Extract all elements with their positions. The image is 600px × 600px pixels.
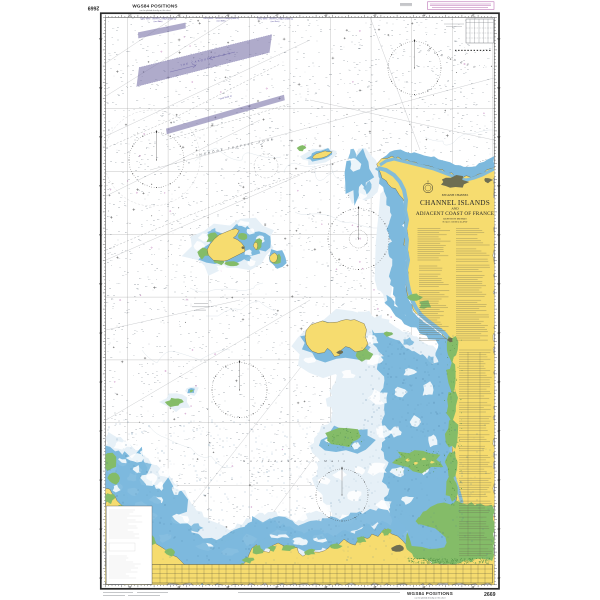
svg-text:36: 36 bbox=[326, 173, 328, 175]
svg-text:67: 67 bbox=[313, 143, 315, 145]
svg-text:57: 57 bbox=[209, 416, 211, 418]
svg-text:63: 63 bbox=[340, 180, 342, 182]
svg-text:23: 23 bbox=[136, 161, 138, 163]
svg-text:86: 86 bbox=[128, 309, 130, 311]
svg-text:20: 20 bbox=[246, 456, 248, 458]
svg-text:46: 46 bbox=[291, 236, 293, 238]
svg-text:80: 80 bbox=[277, 363, 279, 365]
svg-text:59: 59 bbox=[357, 74, 359, 76]
svg-text:50: 50 bbox=[358, 131, 360, 133]
svg-text:52: 52 bbox=[252, 399, 254, 401]
svg-text:84: 84 bbox=[407, 24, 409, 26]
svg-text:33: 33 bbox=[155, 287, 157, 289]
svg-text:84: 84 bbox=[303, 53, 305, 55]
svg-text:5: 5 bbox=[153, 414, 154, 416]
svg-text:32: 32 bbox=[160, 193, 162, 195]
svg-text:88: 88 bbox=[213, 438, 215, 440]
svg-text:59: 59 bbox=[138, 127, 140, 129]
svg-text:52: 52 bbox=[266, 314, 268, 316]
svg-text:79: 79 bbox=[262, 153, 264, 155]
svg-text:47: 47 bbox=[474, 155, 476, 157]
svg-text:16: 16 bbox=[212, 105, 214, 107]
svg-text:36: 36 bbox=[135, 170, 137, 172]
svg-text:66: 66 bbox=[234, 386, 236, 388]
svg-text:15: 15 bbox=[184, 137, 186, 139]
svg-text:68: 68 bbox=[343, 115, 345, 117]
svg-text:40: 40 bbox=[302, 225, 304, 227]
svg-text:88: 88 bbox=[151, 155, 153, 157]
svg-text:52: 52 bbox=[486, 142, 488, 144]
svg-text:91: 91 bbox=[396, 19, 398, 21]
svg-text:81: 81 bbox=[341, 305, 343, 307]
svg-text:45: 45 bbox=[281, 331, 283, 333]
svg-text:80: 80 bbox=[379, 150, 381, 152]
svg-text:14: 14 bbox=[272, 87, 274, 89]
svg-text:86: 86 bbox=[129, 414, 131, 416]
svg-text:52: 52 bbox=[204, 388, 206, 390]
svg-text:60: 60 bbox=[151, 264, 153, 266]
svg-text:34: 34 bbox=[338, 203, 340, 205]
svg-text:29: 29 bbox=[215, 306, 217, 308]
svg-text:21: 21 bbox=[349, 210, 351, 212]
svg-text:43: 43 bbox=[117, 27, 119, 29]
svg-text:43: 43 bbox=[340, 46, 342, 48]
svg-text:15: 15 bbox=[343, 303, 345, 305]
svg-text:9: 9 bbox=[173, 361, 174, 363]
svg-text:43: 43 bbox=[330, 270, 332, 272]
svg-text:49: 49 bbox=[281, 210, 283, 212]
svg-text:51: 51 bbox=[192, 23, 194, 25]
svg-text:78: 78 bbox=[129, 259, 131, 261]
svg-text:31: 31 bbox=[440, 88, 442, 90]
svg-text:25: 25 bbox=[268, 96, 270, 98]
svg-text:40: 40 bbox=[340, 286, 342, 288]
svg-text:38: 38 bbox=[226, 24, 228, 26]
svg-text:30: 30 bbox=[255, 136, 257, 138]
svg-text:15: 15 bbox=[371, 85, 373, 87]
svg-text:85: 85 bbox=[194, 140, 196, 142]
svg-text:11: 11 bbox=[198, 337, 200, 339]
svg-text:88: 88 bbox=[169, 373, 171, 375]
svg-text:50: 50 bbox=[368, 119, 370, 121]
svg-text:84: 84 bbox=[301, 407, 303, 409]
svg-text:13: 13 bbox=[373, 258, 375, 260]
svg-text:8: 8 bbox=[408, 105, 409, 107]
svg-text:42: 42 bbox=[477, 115, 479, 117]
svg-text:48: 48 bbox=[106, 148, 108, 150]
svg-text:4: 4 bbox=[312, 236, 313, 238]
svg-text:75: 75 bbox=[217, 461, 219, 463]
svg-text:91: 91 bbox=[275, 353, 277, 355]
svg-text:10: 10 bbox=[299, 76, 301, 78]
svg-text:42: 42 bbox=[339, 199, 341, 201]
svg-text:84: 84 bbox=[192, 182, 194, 184]
svg-text:6: 6 bbox=[183, 366, 184, 368]
svg-text:74: 74 bbox=[361, 215, 363, 217]
svg-text:62: 62 bbox=[258, 167, 260, 169]
svg-text:47: 47 bbox=[230, 36, 232, 38]
svg-text:91: 91 bbox=[167, 322, 169, 324]
svg-text:20: 20 bbox=[122, 73, 124, 75]
svg-text:34: 34 bbox=[186, 363, 188, 365]
svg-text:18: 18 bbox=[156, 268, 158, 270]
svg-text:70: 70 bbox=[158, 210, 160, 212]
svg-text:64: 64 bbox=[315, 227, 317, 229]
svg-text:68: 68 bbox=[228, 141, 230, 143]
svg-text:74: 74 bbox=[355, 35, 357, 37]
svg-text:92: 92 bbox=[302, 307, 304, 309]
svg-text:45: 45 bbox=[360, 39, 362, 41]
svg-text:5: 5 bbox=[316, 127, 317, 129]
svg-text:79: 79 bbox=[243, 383, 245, 385]
svg-text:61: 61 bbox=[290, 222, 292, 224]
svg-text:83: 83 bbox=[149, 249, 151, 251]
svg-text:4: 4 bbox=[368, 246, 369, 248]
svg-text:48′: 48′ bbox=[99, 380, 103, 384]
svg-text:85: 85 bbox=[261, 75, 263, 77]
svg-text:53: 53 bbox=[290, 327, 292, 329]
svg-text:9: 9 bbox=[156, 279, 157, 281]
svg-text:77: 77 bbox=[466, 98, 468, 100]
svg-text:49: 49 bbox=[108, 87, 110, 89]
svg-text:90: 90 bbox=[179, 81, 181, 83]
svg-text:27: 27 bbox=[242, 373, 244, 375]
svg-text:39: 39 bbox=[293, 455, 295, 457]
svg-text:76: 76 bbox=[267, 317, 269, 319]
svg-text:11: 11 bbox=[181, 377, 183, 379]
svg-text:74: 74 bbox=[128, 110, 130, 112]
svg-text:64: 64 bbox=[176, 391, 178, 393]
svg-text:78: 78 bbox=[130, 24, 132, 26]
svg-text:13: 13 bbox=[423, 130, 425, 132]
svg-text:46′: 46′ bbox=[324, 585, 328, 589]
svg-text:75: 75 bbox=[121, 395, 123, 397]
svg-text:10: 10 bbox=[140, 414, 142, 416]
svg-text:17: 17 bbox=[402, 75, 404, 77]
svg-text:61: 61 bbox=[313, 431, 315, 433]
svg-text:62: 62 bbox=[297, 111, 299, 113]
svg-text:70: 70 bbox=[110, 216, 112, 218]
svg-text:49: 49 bbox=[124, 205, 126, 207]
svg-text:21: 21 bbox=[354, 84, 356, 86]
svg-text:WGS84 POSITIONS: WGS84 POSITIONS bbox=[407, 591, 453, 596]
svg-text:51: 51 bbox=[137, 271, 139, 273]
svg-text:44: 44 bbox=[309, 406, 311, 408]
svg-text:12: 12 bbox=[292, 416, 294, 418]
svg-text:56: 56 bbox=[192, 154, 194, 156]
svg-text:10: 10 bbox=[380, 144, 382, 146]
svg-text:30: 30 bbox=[198, 98, 200, 100]
svg-text:52: 52 bbox=[106, 185, 108, 187]
svg-text:60: 60 bbox=[364, 123, 366, 125]
svg-text:33: 33 bbox=[267, 504, 269, 506]
svg-text:5: 5 bbox=[205, 351, 206, 353]
svg-text:27: 27 bbox=[183, 101, 185, 103]
svg-text:28: 28 bbox=[113, 303, 115, 305]
svg-text:43: 43 bbox=[141, 39, 143, 41]
svg-text:79: 79 bbox=[188, 361, 190, 363]
svg-text:83: 83 bbox=[233, 316, 235, 318]
svg-text:53: 53 bbox=[160, 173, 162, 175]
svg-text:85: 85 bbox=[316, 302, 318, 304]
svg-text:31: 31 bbox=[156, 371, 158, 373]
svg-text:8: 8 bbox=[151, 309, 152, 311]
svg-text:21: 21 bbox=[119, 201, 121, 203]
svg-text:70: 70 bbox=[313, 172, 315, 174]
svg-text:14: 14 bbox=[253, 147, 255, 149]
svg-text:(see Note): (see Note) bbox=[217, 20, 226, 23]
svg-text:61: 61 bbox=[298, 211, 300, 213]
svg-text:44: 44 bbox=[300, 245, 302, 247]
svg-text:65: 65 bbox=[213, 377, 215, 379]
svg-text:80: 80 bbox=[432, 71, 434, 73]
svg-text:23: 23 bbox=[160, 191, 162, 193]
svg-text:84: 84 bbox=[316, 185, 318, 187]
svg-text:45′: 45′ bbox=[373, 585, 377, 589]
svg-text:8: 8 bbox=[338, 135, 339, 137]
svg-text:62: 62 bbox=[130, 86, 132, 88]
svg-text:56: 56 bbox=[164, 43, 166, 45]
svg-text:58: 58 bbox=[368, 299, 370, 301]
svg-text:20: 20 bbox=[335, 262, 337, 264]
svg-text:42: 42 bbox=[294, 42, 296, 44]
svg-text:78: 78 bbox=[191, 280, 193, 282]
svg-text:11: 11 bbox=[318, 52, 320, 54]
svg-text:11: 11 bbox=[132, 65, 134, 67]
svg-text:78: 78 bbox=[269, 61, 271, 63]
svg-text:62: 62 bbox=[226, 455, 228, 457]
svg-text:4: 4 bbox=[304, 125, 305, 127]
svg-text:69: 69 bbox=[225, 367, 227, 369]
svg-text:11: 11 bbox=[278, 26, 280, 28]
svg-text:72: 72 bbox=[396, 70, 398, 72]
svg-text:60: 60 bbox=[182, 198, 184, 200]
svg-text:46′: 46′ bbox=[324, 13, 328, 17]
svg-text:48′: 48′ bbox=[226, 585, 230, 589]
svg-text:29: 29 bbox=[191, 145, 193, 147]
svg-text:41: 41 bbox=[129, 251, 131, 253]
svg-text:5: 5 bbox=[346, 197, 347, 199]
svg-text:29: 29 bbox=[299, 284, 301, 286]
svg-text:77: 77 bbox=[421, 99, 423, 101]
svg-text:44′: 44′ bbox=[497, 576, 501, 580]
svg-text:90: 90 bbox=[375, 59, 377, 61]
svg-text:84: 84 bbox=[445, 98, 447, 100]
svg-text:50: 50 bbox=[270, 375, 272, 377]
svg-text:36: 36 bbox=[329, 138, 331, 140]
svg-text:90: 90 bbox=[278, 178, 280, 180]
svg-text:10: 10 bbox=[182, 236, 184, 238]
svg-text:30: 30 bbox=[454, 128, 456, 130]
svg-text:57: 57 bbox=[206, 188, 208, 190]
svg-text:81: 81 bbox=[244, 202, 246, 204]
svg-text:37: 37 bbox=[284, 70, 286, 72]
svg-text:19: 19 bbox=[122, 172, 124, 174]
svg-text:57: 57 bbox=[198, 49, 200, 51]
svg-text:38: 38 bbox=[118, 207, 120, 209]
svg-text:75: 75 bbox=[216, 442, 218, 444]
svg-text:30: 30 bbox=[274, 244, 276, 246]
svg-text:59: 59 bbox=[244, 349, 246, 351]
svg-text:57: 57 bbox=[260, 314, 262, 316]
svg-text:89: 89 bbox=[459, 150, 461, 152]
svg-text:88: 88 bbox=[134, 284, 136, 286]
svg-text:6: 6 bbox=[379, 37, 380, 39]
svg-text:78: 78 bbox=[277, 478, 279, 480]
svg-text:41: 41 bbox=[465, 72, 467, 74]
svg-text:74: 74 bbox=[295, 395, 297, 397]
svg-text:35: 35 bbox=[257, 429, 259, 431]
svg-text:69: 69 bbox=[188, 333, 190, 335]
svg-text:63: 63 bbox=[454, 31, 456, 33]
svg-text:67: 67 bbox=[312, 215, 314, 217]
svg-text:38: 38 bbox=[243, 113, 245, 115]
svg-text:73: 73 bbox=[128, 188, 130, 190]
svg-text:30: 30 bbox=[365, 258, 367, 260]
svg-text:75: 75 bbox=[406, 134, 408, 136]
svg-text:73: 73 bbox=[316, 376, 318, 378]
svg-text:12: 12 bbox=[458, 123, 460, 125]
svg-text:58: 58 bbox=[392, 57, 394, 59]
svg-text:43: 43 bbox=[344, 282, 346, 284]
svg-text:74: 74 bbox=[188, 483, 190, 485]
svg-text:52: 52 bbox=[292, 420, 294, 422]
svg-text:92: 92 bbox=[106, 229, 108, 231]
svg-text:8: 8 bbox=[272, 350, 273, 352]
svg-text:52: 52 bbox=[196, 477, 198, 479]
svg-text:18: 18 bbox=[166, 459, 168, 461]
svg-text:23: 23 bbox=[423, 111, 425, 113]
svg-text:85: 85 bbox=[468, 139, 470, 141]
svg-text:17: 17 bbox=[171, 279, 173, 281]
svg-text:35: 35 bbox=[332, 302, 334, 304]
svg-text:6: 6 bbox=[479, 65, 480, 67]
svg-text:21: 21 bbox=[271, 509, 273, 511]
svg-text:52: 52 bbox=[230, 420, 232, 422]
svg-text:34: 34 bbox=[346, 294, 348, 296]
svg-text:46: 46 bbox=[298, 238, 300, 240]
svg-text:10: 10 bbox=[148, 384, 150, 386]
svg-text:83: 83 bbox=[136, 137, 138, 139]
svg-text:50: 50 bbox=[397, 143, 399, 145]
svg-text:38: 38 bbox=[120, 77, 122, 79]
svg-text:50: 50 bbox=[364, 134, 366, 136]
svg-text:89: 89 bbox=[401, 112, 403, 114]
svg-text:64: 64 bbox=[458, 126, 460, 128]
svg-text:8: 8 bbox=[266, 209, 267, 211]
svg-text:33: 33 bbox=[445, 104, 447, 106]
svg-text:31: 31 bbox=[250, 482, 252, 484]
svg-text:26: 26 bbox=[243, 360, 245, 362]
svg-text:66: 66 bbox=[184, 277, 186, 279]
svg-text:(see Note): (see Note) bbox=[271, 20, 280, 23]
svg-text:23: 23 bbox=[193, 427, 195, 429]
svg-text:43: 43 bbox=[273, 35, 275, 37]
svg-text:41: 41 bbox=[188, 204, 190, 206]
svg-text:82: 82 bbox=[239, 394, 241, 396]
svg-text:21: 21 bbox=[141, 377, 143, 379]
svg-text:14: 14 bbox=[142, 400, 144, 402]
svg-text:87: 87 bbox=[216, 473, 218, 475]
svg-text:30: 30 bbox=[195, 332, 197, 334]
svg-text:46: 46 bbox=[129, 343, 131, 345]
svg-text:88: 88 bbox=[156, 60, 158, 62]
svg-text:40: 40 bbox=[154, 174, 156, 176]
svg-text:50′: 50′ bbox=[99, 282, 103, 286]
svg-text:50′: 50′ bbox=[128, 13, 132, 17]
svg-text:16: 16 bbox=[186, 74, 188, 76]
svg-text:91: 91 bbox=[247, 463, 249, 465]
svg-text:13: 13 bbox=[136, 331, 138, 333]
svg-text:82: 82 bbox=[319, 192, 321, 194]
svg-text:24: 24 bbox=[405, 146, 407, 148]
svg-text:82: 82 bbox=[162, 320, 164, 322]
svg-text:5: 5 bbox=[293, 351, 294, 353]
svg-text:38: 38 bbox=[247, 516, 249, 518]
svg-text:34: 34 bbox=[336, 225, 338, 227]
svg-text:34: 34 bbox=[268, 159, 270, 161]
svg-text:41: 41 bbox=[162, 115, 164, 117]
svg-text:72: 72 bbox=[133, 109, 135, 111]
svg-text:17: 17 bbox=[292, 362, 294, 364]
svg-text:46: 46 bbox=[361, 45, 363, 47]
svg-text:69: 69 bbox=[445, 86, 447, 88]
svg-text:74: 74 bbox=[177, 354, 179, 356]
svg-text:47′: 47′ bbox=[275, 13, 279, 17]
svg-text:41: 41 bbox=[309, 241, 311, 243]
svg-text:65: 65 bbox=[132, 18, 134, 20]
svg-text:75: 75 bbox=[327, 181, 329, 183]
svg-text:42: 42 bbox=[358, 48, 360, 50]
svg-text:89: 89 bbox=[253, 480, 255, 482]
svg-text:36: 36 bbox=[289, 230, 291, 232]
svg-text:23: 23 bbox=[152, 416, 154, 418]
svg-text:52: 52 bbox=[202, 344, 204, 346]
svg-text:43′: 43′ bbox=[471, 13, 475, 17]
svg-text:49: 49 bbox=[309, 482, 311, 484]
svg-text:33: 33 bbox=[148, 261, 150, 263]
svg-text:21: 21 bbox=[131, 242, 133, 244]
svg-text:15: 15 bbox=[315, 139, 317, 141]
svg-text:52: 52 bbox=[226, 287, 228, 289]
svg-text:30: 30 bbox=[253, 406, 255, 408]
svg-text:43′: 43′ bbox=[471, 585, 475, 589]
svg-text:42: 42 bbox=[278, 109, 280, 111]
svg-text:69: 69 bbox=[209, 300, 211, 302]
svg-text:84: 84 bbox=[259, 476, 261, 478]
svg-text:75: 75 bbox=[352, 308, 354, 310]
svg-text:55: 55 bbox=[190, 398, 192, 400]
svg-text:81: 81 bbox=[124, 271, 126, 273]
svg-text:92: 92 bbox=[232, 457, 234, 459]
svg-text:32: 32 bbox=[333, 45, 335, 47]
svg-text:41: 41 bbox=[216, 342, 218, 344]
svg-text:91: 91 bbox=[151, 396, 153, 398]
svg-text:69: 69 bbox=[225, 159, 227, 161]
svg-text:36: 36 bbox=[108, 338, 110, 340]
svg-text:48′: 48′ bbox=[497, 380, 501, 384]
svg-text:91: 91 bbox=[115, 393, 117, 395]
svg-text:61: 61 bbox=[284, 106, 286, 108]
svg-text:68: 68 bbox=[145, 431, 147, 433]
svg-text:71: 71 bbox=[177, 436, 179, 438]
svg-text:66: 66 bbox=[215, 280, 217, 282]
svg-text:28: 28 bbox=[155, 89, 157, 91]
svg-text:55: 55 bbox=[194, 88, 196, 90]
svg-text:46: 46 bbox=[417, 66, 419, 68]
svg-text:49′: 49′ bbox=[99, 331, 103, 335]
svg-text:33: 33 bbox=[257, 318, 259, 320]
